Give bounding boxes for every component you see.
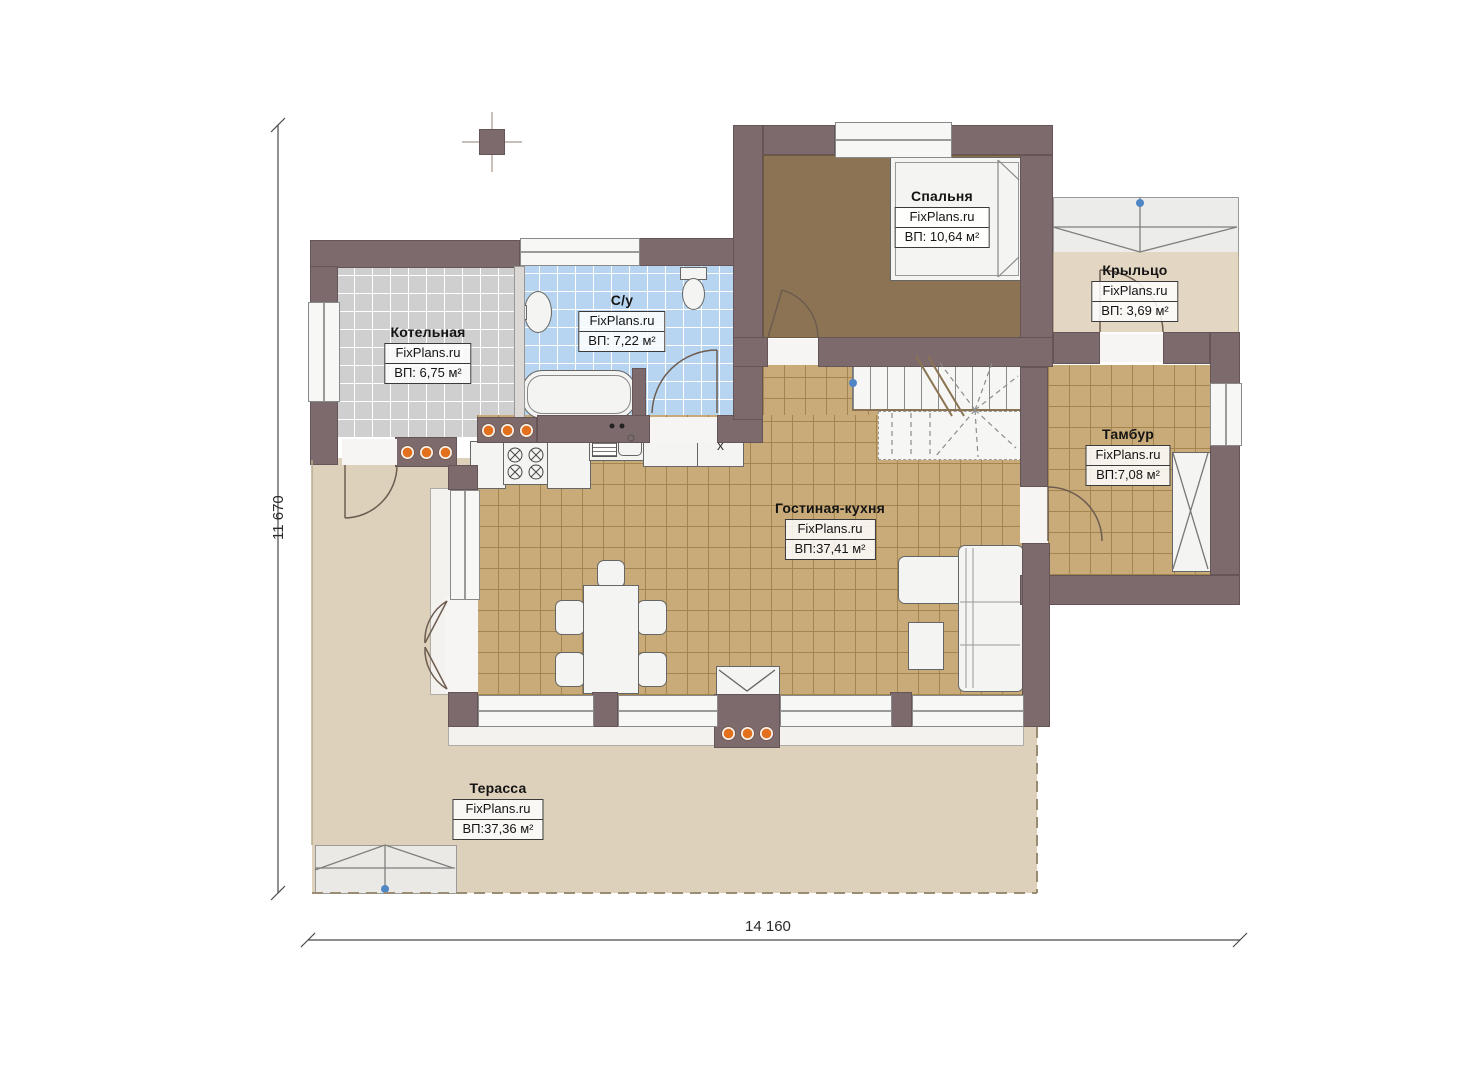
- room-info-box: FixPlans.ru ВП: 10,64 м²: [895, 207, 990, 248]
- brand-text: FixPlans.ru: [1092, 282, 1177, 302]
- room-info-box: FixPlans.ru ВП: 6,75 м²: [384, 343, 471, 384]
- window: [450, 490, 480, 600]
- room-label-gostinaya: Гостиная-кухня FixPlans.ru ВП:37,41 м²: [775, 500, 885, 560]
- floor-plan: x: [0, 0, 1474, 1080]
- area-text: ВП:37,41 м²: [785, 540, 874, 559]
- door-opening: [445, 597, 478, 692]
- area-text: ВП: 3,69 м²: [1092, 302, 1177, 321]
- area-text: ВП:37,36 м²: [453, 820, 542, 839]
- corner-sofa: [958, 545, 1024, 692]
- wall: [310, 396, 338, 465]
- room-info-box: FixPlans.ru ВП: 7,22 м²: [578, 311, 665, 352]
- wall: [448, 465, 478, 490]
- wall: [1163, 332, 1210, 364]
- vent-dot-icon: [439, 446, 452, 459]
- dimension-line-horizontal: [301, 933, 1247, 947]
- wall: [537, 415, 650, 443]
- wall: [310, 266, 338, 306]
- wall: [1210, 444, 1240, 575]
- wall: [637, 238, 735, 266]
- window: [618, 695, 718, 727]
- coffee-table: [908, 622, 944, 670]
- area-text: ВП: 7,22 м²: [579, 332, 664, 351]
- vent-dot-icon: [482, 424, 495, 437]
- stove: [503, 441, 550, 485]
- wall: [950, 125, 1053, 155]
- room-label-terassa: Терасса FixPlans.ru ВП:37,36 м²: [452, 780, 543, 840]
- wall: [310, 240, 520, 268]
- room-name: Гостиная-кухня: [775, 500, 885, 516]
- vent-dot-icon: [520, 424, 533, 437]
- dining-chair: [597, 560, 625, 588]
- dimension-label-horizontal: 14 160: [745, 918, 791, 935]
- vent-dot-icon: [501, 424, 514, 437]
- room-name: С/у: [578, 292, 665, 308]
- room-label-spalnya: Спальня FixPlans.ru ВП: 10,64 м²: [895, 188, 990, 248]
- wall: [818, 337, 1053, 367]
- dining-table: [583, 585, 639, 694]
- fireplace-dot-icon: [760, 727, 773, 740]
- door-opening: [1100, 334, 1163, 362]
- brand-text: FixPlans.ru: [896, 208, 989, 228]
- wash-basin: [524, 291, 552, 333]
- room-info-box: FixPlans.ru ВП:37,41 м²: [784, 519, 875, 560]
- area-text: ВП:7,08 м²: [1086, 466, 1169, 485]
- window: [835, 122, 952, 158]
- wall: [592, 692, 618, 727]
- brand-text: FixPlans.ru: [785, 520, 874, 540]
- room-label-kryltso: Крыльцо FixPlans.ru ВП: 3,69 м²: [1091, 262, 1178, 322]
- window: [912, 695, 1024, 727]
- room-label-tambur: Тамбур FixPlans.ru ВП:7,08 м²: [1085, 426, 1170, 486]
- wall: [1210, 332, 1240, 384]
- wall: [448, 692, 478, 727]
- room-name: Крыльцо: [1091, 262, 1178, 278]
- porch-steps: [1053, 197, 1239, 254]
- room-info-box: FixPlans.ru ВП:37,36 м²: [452, 799, 543, 840]
- brand-text: FixPlans.ru: [1086, 446, 1169, 466]
- dining-chair: [637, 652, 667, 687]
- wall: [632, 368, 646, 416]
- room-label-su: С/у FixPlans.ru ВП: 7,22 м²: [578, 292, 665, 352]
- partition-wall: [514, 266, 525, 420]
- wall: [1020, 575, 1240, 605]
- vent-dot-icon: [420, 446, 433, 459]
- bathtub: [522, 370, 636, 419]
- fireplace-dot-icon: [741, 727, 754, 740]
- room-name: Котельная: [384, 324, 471, 340]
- fireplace-block: [714, 694, 780, 748]
- stairs-upper-flight: [852, 362, 1022, 411]
- area-text: ВП: 10,64 м²: [896, 228, 989, 247]
- door-opening: [768, 339, 818, 365]
- wall: [763, 125, 835, 155]
- brand-text: FixPlans.ru: [385, 344, 470, 364]
- wall: [733, 337, 768, 367]
- room-name: Терасса: [452, 780, 543, 796]
- wall: [1053, 332, 1100, 364]
- vent-dot-icon: [401, 446, 414, 459]
- door-opening: [1020, 487, 1048, 543]
- wardrobe: [1172, 452, 1211, 572]
- toilet-bowl: [682, 278, 705, 310]
- window: [478, 695, 594, 727]
- brand-text: FixPlans.ru: [453, 800, 542, 820]
- window: [520, 238, 640, 266]
- window: [1210, 383, 1242, 446]
- door-opening: [342, 439, 397, 465]
- dining-chair: [555, 652, 585, 687]
- room-info-box: FixPlans.ru ВП: 3,69 м²: [1091, 281, 1178, 322]
- wall: [1022, 543, 1050, 727]
- area-text: ВП: 6,75 м²: [385, 364, 470, 383]
- wall: [1020, 367, 1048, 487]
- terrace-steps: [315, 845, 457, 894]
- chimney-block: [479, 129, 505, 155]
- room-name: Спальня: [895, 188, 990, 204]
- brand-text: FixPlans.ru: [579, 312, 664, 332]
- room-label-kotelnaya: Котельная FixPlans.ru ВП: 6,75 м²: [384, 324, 471, 384]
- wall: [890, 692, 912, 727]
- door-opening: [650, 417, 717, 443]
- dimension-label-vertical: 11 670: [270, 495, 287, 540]
- room-info-box: FixPlans.ru ВП:7,08 м²: [1085, 445, 1170, 486]
- wall: [1020, 155, 1053, 367]
- wall-vent-block: [477, 417, 537, 443]
- fireplace-dot-icon: [722, 727, 735, 740]
- wall-vent-block: [395, 437, 457, 467]
- window: [780, 695, 892, 727]
- stairs-lower-flight: [878, 411, 1022, 460]
- room-name: Тамбур: [1085, 426, 1170, 442]
- window: [308, 302, 340, 402]
- wall: [733, 125, 763, 420]
- dining-chair: [555, 600, 585, 635]
- dining-chair: [637, 600, 667, 635]
